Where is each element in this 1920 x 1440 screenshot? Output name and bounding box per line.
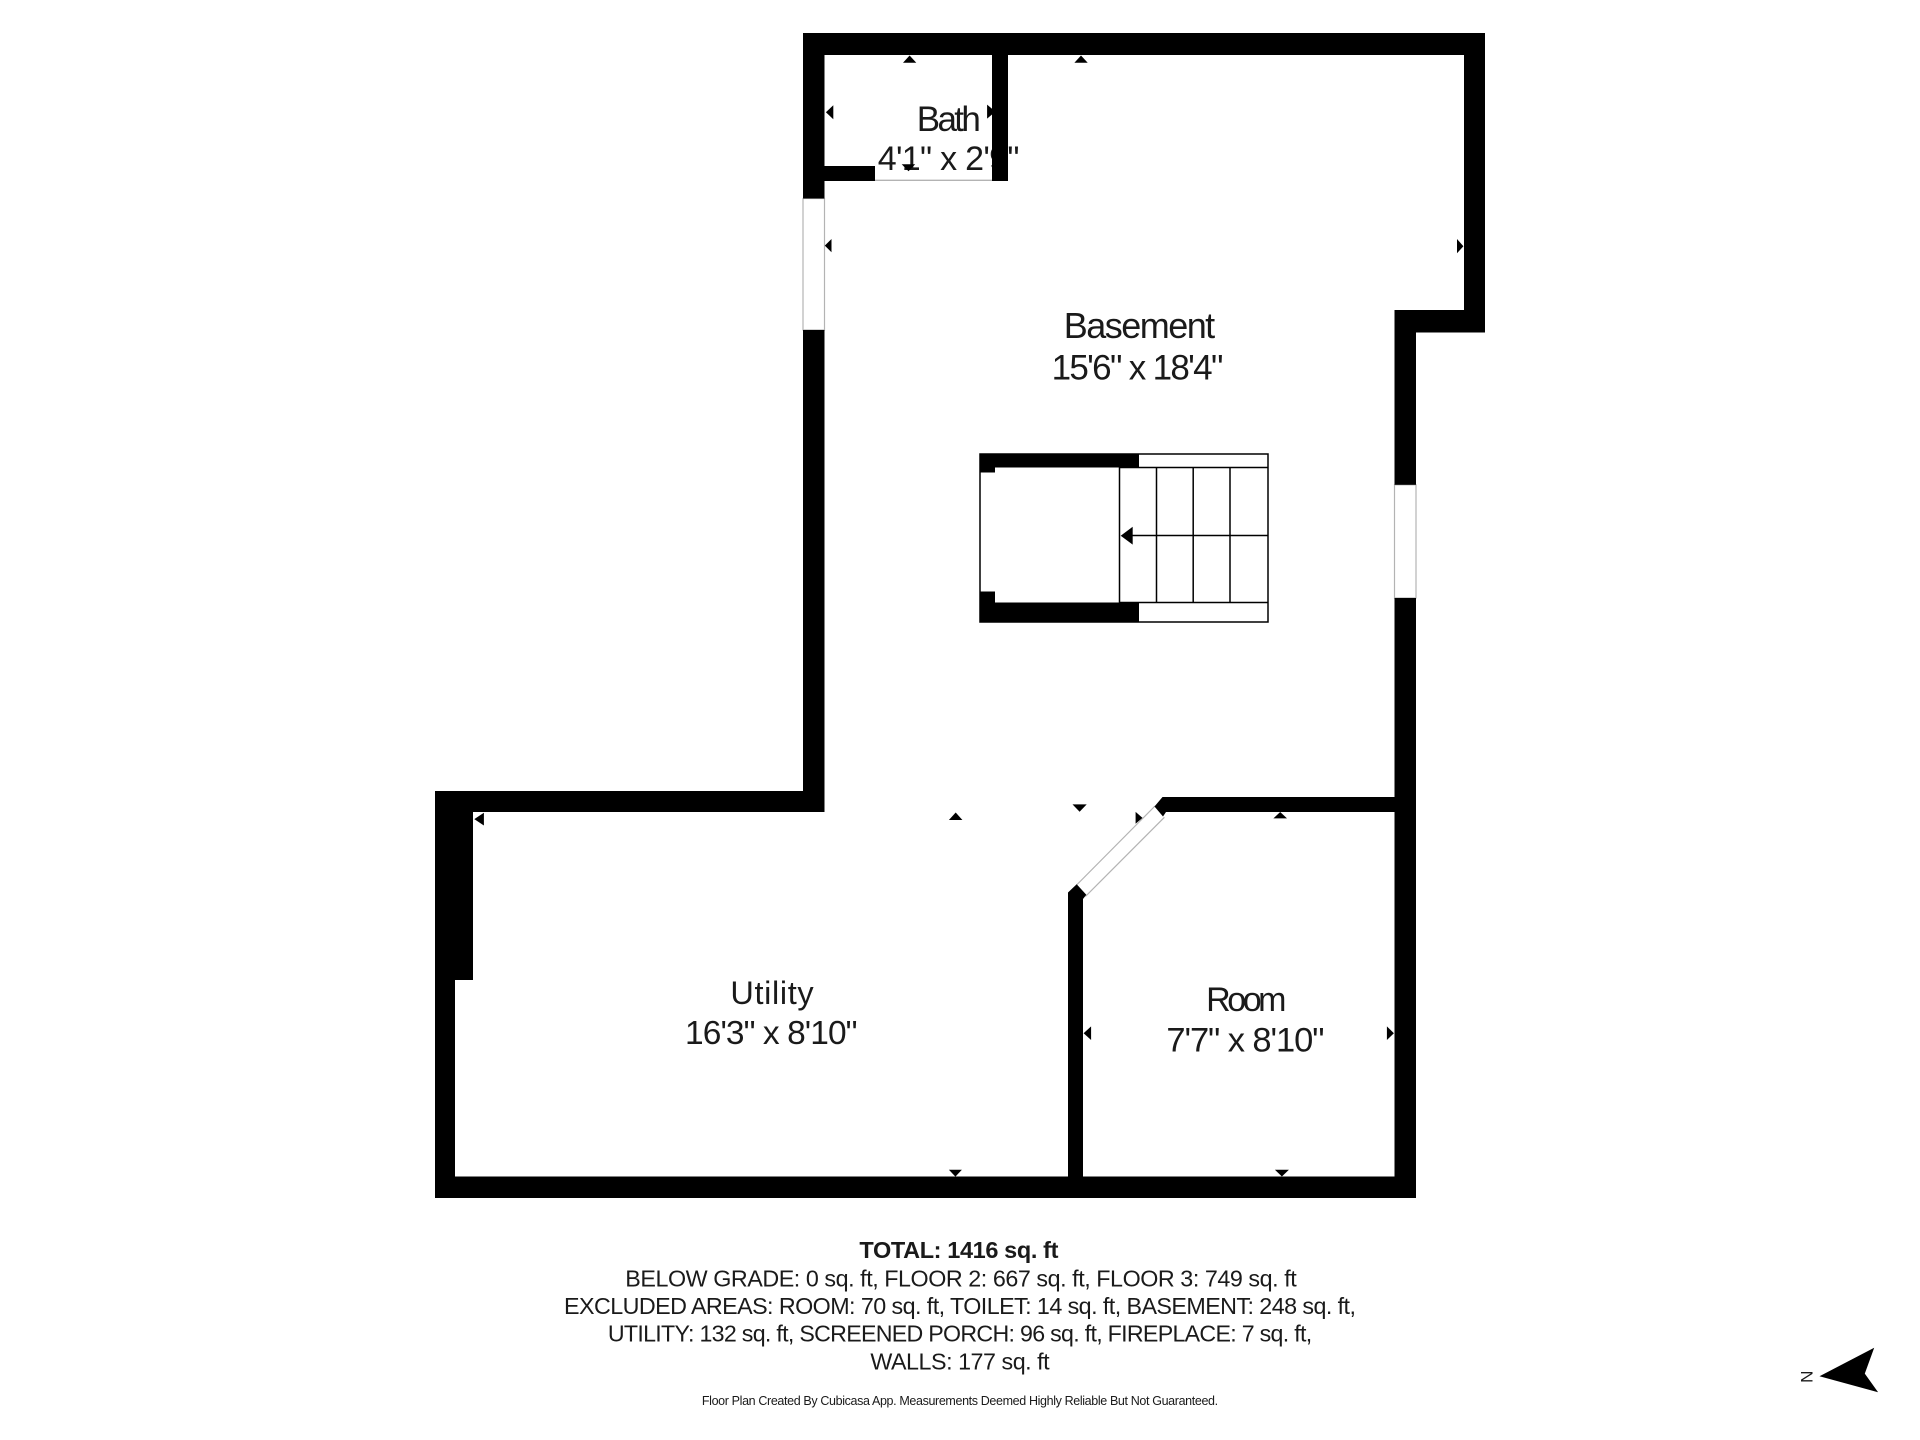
svg-text:N: N: [1798, 1371, 1817, 1383]
svg-text:Bath: Bath: [917, 100, 981, 139]
svg-text:Floor Plan Created By Cubicasa: Floor Plan Created By Cubicasa App. Meas…: [702, 1394, 1218, 1408]
svg-text:Utility: Utility: [730, 975, 814, 1011]
svg-text:TOTAL: 1416 sq. ft: TOTAL: 1416 sq. ft: [859, 1237, 1058, 1263]
svg-text:WALLS: 177 sq. ft: WALLS: 177 sq. ft: [870, 1349, 1050, 1375]
svg-text:7'7" x 8'10": 7'7" x 8'10": [1166, 1021, 1324, 1059]
svg-text:BELOW GRADE: 0 sq. ft, FLOOR 2: BELOW GRADE: 0 sq. ft, FLOOR 2: 667 sq. …: [625, 1265, 1297, 1291]
svg-text:Basement: Basement: [1064, 305, 1215, 346]
svg-text:Room: Room: [1206, 981, 1286, 1019]
svg-text:UTILITY: 132 sq. ft, SCREENED: UTILITY: 132 sq. ft, SCREENED PORCH: 96 …: [608, 1321, 1312, 1347]
svg-text:EXCLUDED AREAS: ROOM: 70 sq. f: EXCLUDED AREAS: ROOM: 70 sq. ft, TOILET:…: [564, 1293, 1356, 1319]
svg-text:15'6" x 18'4": 15'6" x 18'4": [1052, 349, 1224, 388]
svg-text:16'3" x 8'10": 16'3" x 8'10": [685, 1015, 858, 1052]
